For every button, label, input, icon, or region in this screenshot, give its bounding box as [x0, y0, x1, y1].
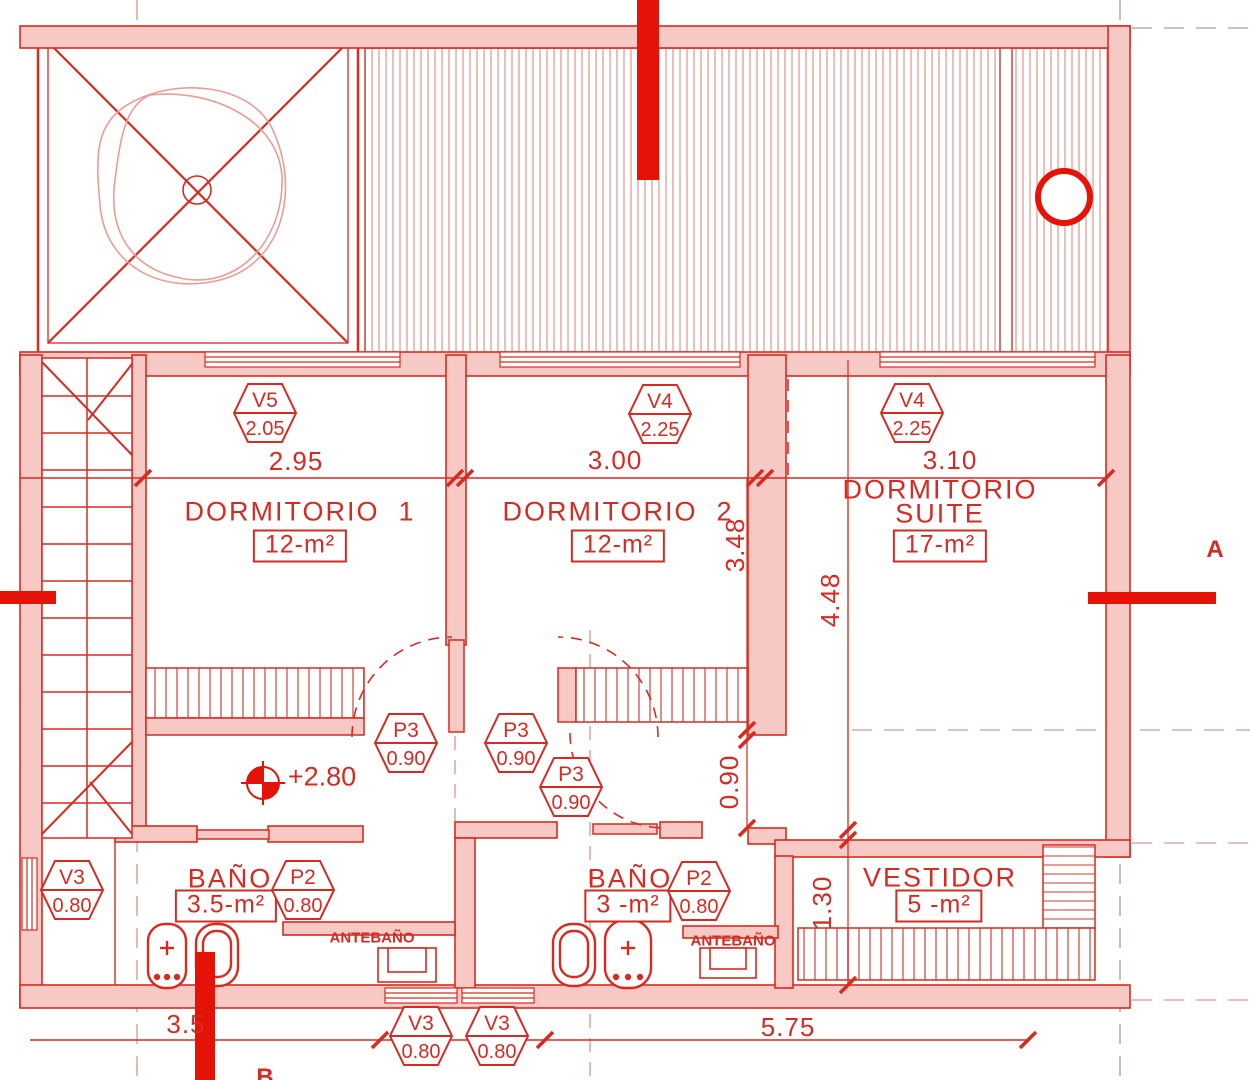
roof-deck [365, 48, 1108, 355]
svg-text:2.25: 2.25 [893, 418, 932, 440]
svg-text:0.80: 0.80 [53, 895, 92, 917]
floor-plan: DORMITORIO 1 12-m² DORMITORIO 2 12-m² DO… [0, 0, 1250, 1080]
svg-text:P2: P2 [686, 867, 712, 890]
window-tag-v3-bath1: V3 0.80 [39, 859, 105, 921]
dim-4-48: 4.48 [817, 573, 843, 628]
section-bar-left [0, 591, 56, 604]
room-label-bath2: BAÑO [588, 866, 673, 893]
door-leaf-bath1 [197, 830, 269, 839]
vestidor-shelves-right [1043, 845, 1095, 929]
svg-text:P3: P3 [393, 719, 419, 742]
door-leaf-dorm1 [449, 640, 464, 732]
door-tag-p2-1: P2 0.80 [270, 859, 336, 921]
dim-1-30: 1.30 [809, 876, 835, 931]
window-v4-dorm2 [500, 352, 740, 367]
area-bath2: 3 -m² [584, 890, 671, 923]
closet-dorm2 [576, 668, 748, 722]
svg-text:0.90: 0.90 [497, 748, 536, 770]
sink-antebano2 [700, 948, 756, 978]
svg-text:0.90: 0.90 [387, 748, 426, 770]
room-label-suite-line2: SUITE [895, 501, 985, 528]
dim-5-75: 5.75 [761, 1014, 816, 1040]
room-label-antebano1: ANTEBAÑO [330, 931, 415, 946]
svg-text:0.80: 0.80 [478, 1041, 517, 1063]
room-label-bath1: BAÑO [188, 866, 273, 893]
svg-text:P3: P3 [503, 719, 529, 742]
window-v5-dorm1 [205, 352, 400, 367]
section-letter-b: B [256, 1066, 273, 1080]
door-leaf-bath2 [593, 824, 657, 834]
roof-drain-circle [1038, 171, 1090, 223]
window-tag-v3-bottom-2: V3 0.80 [464, 1005, 530, 1067]
dim-2-95: 2.95 [269, 448, 324, 474]
void-skylight [38, 32, 358, 353]
vestidor-closet [798, 928, 1095, 980]
bidet-bath1 [148, 924, 186, 988]
window-v4-suite [880, 352, 1095, 367]
svg-text:V3: V3 [484, 1012, 510, 1035]
door-tag-p3-1: P3 0.90 [373, 712, 439, 774]
svg-text:P2: P2 [290, 866, 316, 889]
section-letter-a: A [1206, 538, 1223, 562]
area-dormitorio1: 12-m² [253, 530, 347, 563]
area-suite: 17-m² [893, 530, 987, 563]
door-tag-p2-2: P2 0.80 [666, 860, 732, 922]
svg-text:2.05: 2.05 [246, 418, 285, 440]
door-tag-p3-3: P3 0.90 [538, 756, 604, 818]
closet-dorm1 [146, 668, 364, 718]
dim-3-5: 3.5 [166, 1011, 205, 1037]
svg-text:P3: P3 [558, 763, 584, 786]
svg-text:2.25: 2.25 [641, 419, 680, 441]
dim-3-48: 3.48 [722, 518, 748, 573]
svg-text:V4: V4 [899, 389, 925, 412]
toilet-bath2 [553, 924, 595, 986]
svg-text:V4: V4 [647, 390, 673, 413]
dim-0-90: 0.90 [716, 755, 742, 810]
svg-text:0.80: 0.80 [284, 895, 323, 917]
section-bar-top [637, 0, 659, 180]
area-dormitorio2: 12-m² [571, 530, 665, 563]
room-label-antebano2: ANTEBAÑO [691, 934, 776, 949]
dim-3-00: 3.00 [588, 447, 643, 473]
window-tag-v5: V5 2.05 [232, 382, 298, 444]
window-v3-bath1 [22, 858, 37, 930]
area-bath1: 3.5-m² [175, 890, 277, 923]
svg-text:0.90: 0.90 [552, 792, 591, 814]
room-label-vestidor: VESTIDOR [863, 865, 1017, 892]
bidet-bath2 [605, 920, 651, 988]
level-annotation: +2.80 [288, 764, 356, 791]
svg-text:0.80: 0.80 [680, 896, 719, 918]
room-label-dormitorio2: DORMITORIO 2 [502, 499, 733, 526]
window-v3-bottom-2 [462, 988, 534, 1003]
section-bar-right [1088, 592, 1216, 604]
area-vestidor: 5 -m² [895, 890, 982, 923]
svg-text:V3: V3 [408, 1012, 434, 1035]
svg-text:V3: V3 [59, 866, 85, 889]
window-tag-v4-suite: V4 2.25 [879, 382, 945, 444]
window-tag-v4-dorm2: V4 2.25 [627, 383, 693, 445]
room-label-dormitorio1: DORMITORIO 1 [184, 499, 415, 526]
svg-text:V5: V5 [252, 389, 278, 412]
sink-antebano1 [378, 948, 436, 982]
level-marker [241, 761, 285, 805]
window-tag-v3-bottom-1: V3 0.80 [388, 1005, 454, 1067]
svg-text:0.80: 0.80 [402, 1041, 441, 1063]
dim-3-10: 3.10 [923, 447, 978, 473]
window-v3-bottom-1 [385, 988, 457, 1003]
